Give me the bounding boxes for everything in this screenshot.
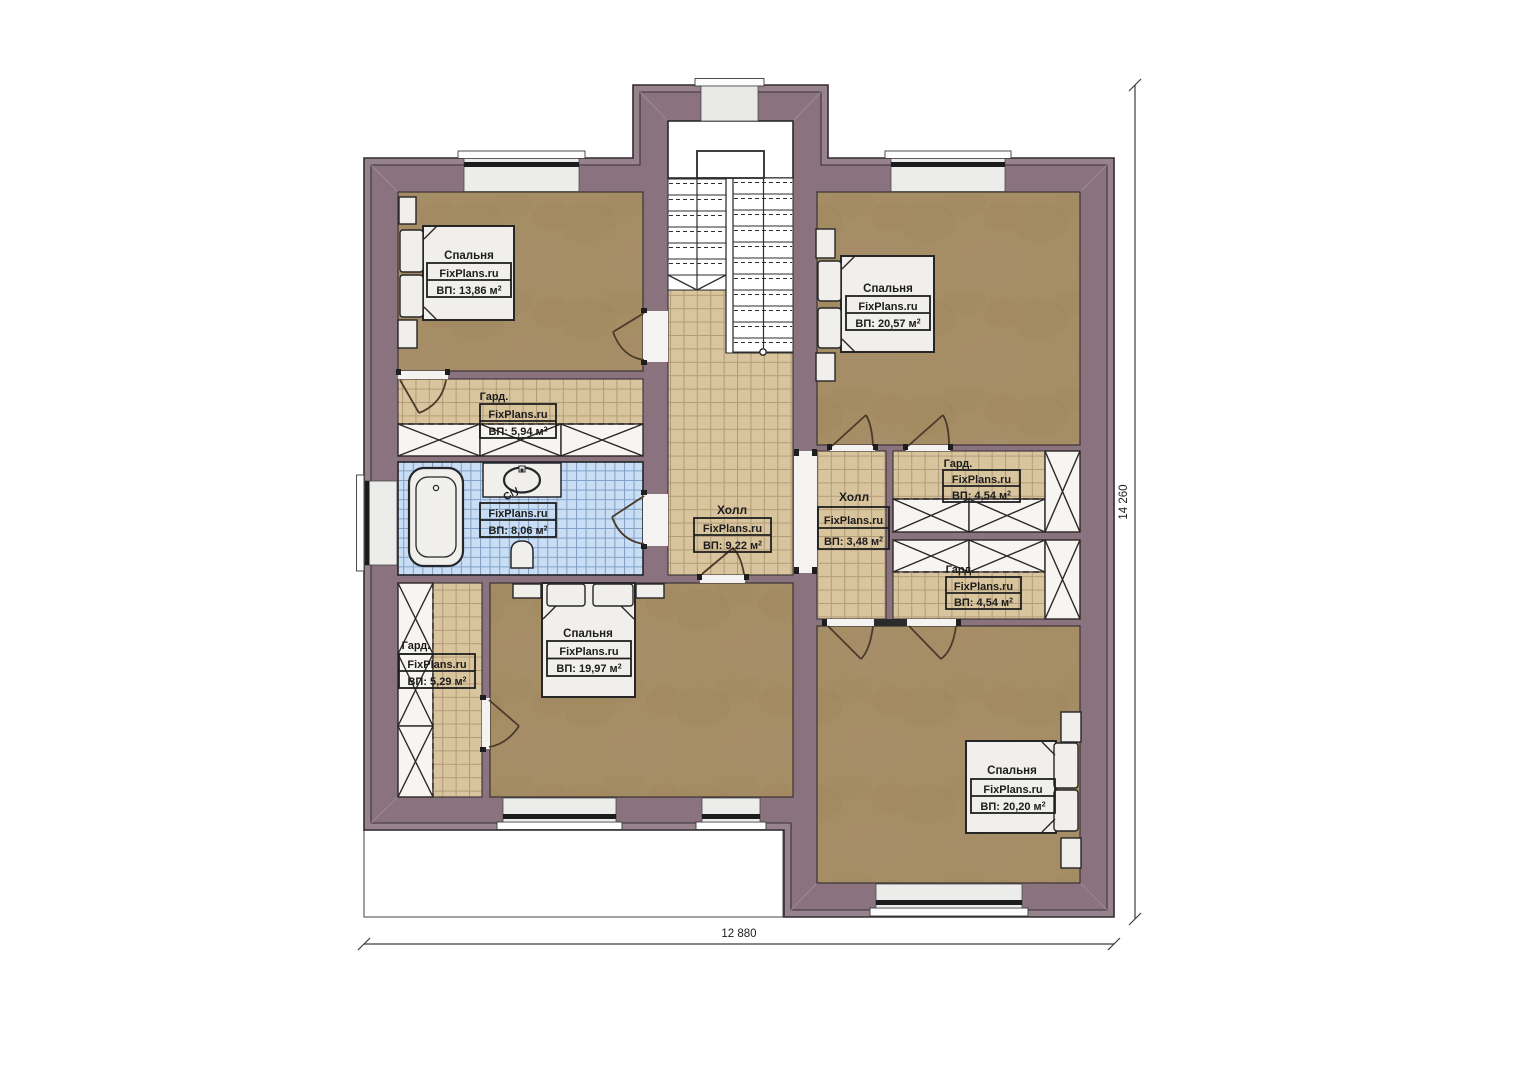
svg-text:FixPlans.ru: FixPlans.ru (983, 784, 1042, 796)
svg-text:Спальня: Спальня (863, 283, 913, 295)
svg-text:ВП: 9,22 м2: ВП: 9,22 м2 (703, 540, 762, 552)
svg-text:ВП: 20,20 м2: ВП: 20,20 м2 (980, 801, 1045, 813)
svg-text:ВП: 8,06 м2: ВП: 8,06 м2 (488, 525, 547, 537)
svg-text:ВП: 5,94 м2: ВП: 5,94 м2 (488, 426, 547, 438)
svg-text:FixPlans.ru: FixPlans.ru (559, 646, 618, 658)
svg-text:12 880: 12 880 (721, 928, 756, 940)
svg-text:ВП: 3,48 м2: ВП: 3,48 м2 (824, 536, 883, 548)
svg-text:ВП: 13,86 м2: ВП: 13,86 м2 (436, 285, 501, 297)
svg-text:ВП: 19,97 м2: ВП: 19,97 м2 (556, 663, 621, 675)
svg-text:FixPlans.ru: FixPlans.ru (952, 474, 1011, 486)
svg-text:Гард.: Гард. (402, 640, 431, 652)
svg-text:ВП: 5,29 м2: ВП: 5,29 м2 (407, 676, 466, 688)
svg-text:FixPlans.ru: FixPlans.ru (954, 581, 1013, 593)
svg-text:FixPlans.ru: FixPlans.ru (488, 409, 547, 421)
svg-text:FixPlans.ru: FixPlans.ru (439, 268, 498, 280)
svg-text:Спальня: Спальня (987, 765, 1037, 777)
svg-text:Холл: Холл (717, 503, 747, 517)
svg-text:FixPlans.ru: FixPlans.ru (824, 515, 883, 527)
svg-text:Холл: Холл (839, 490, 869, 504)
svg-text:FixPlans.ru: FixPlans.ru (488, 508, 547, 520)
svg-text:Спальня: Спальня (563, 628, 613, 640)
svg-text:Спальня: Спальня (444, 250, 494, 262)
svg-text:FixPlans.ru: FixPlans.ru (703, 523, 762, 535)
svg-text:ВП: 4,54 м2: ВП: 4,54 м2 (954, 597, 1013, 609)
svg-text:Гард.: Гард. (480, 391, 509, 403)
svg-text:Гард.: Гард. (944, 458, 973, 470)
svg-text:FixPlans.ru: FixPlans.ru (858, 301, 917, 313)
svg-text:ВП: 4,54 м2: ВП: 4,54 м2 (952, 490, 1011, 502)
svg-text:ВП: 20,57 м2: ВП: 20,57 м2 (855, 318, 920, 330)
svg-text:FixPlans.ru: FixPlans.ru (407, 659, 466, 671)
svg-text:14 260: 14 260 (1118, 484, 1130, 519)
svg-text:Гард.: Гард. (946, 564, 975, 576)
